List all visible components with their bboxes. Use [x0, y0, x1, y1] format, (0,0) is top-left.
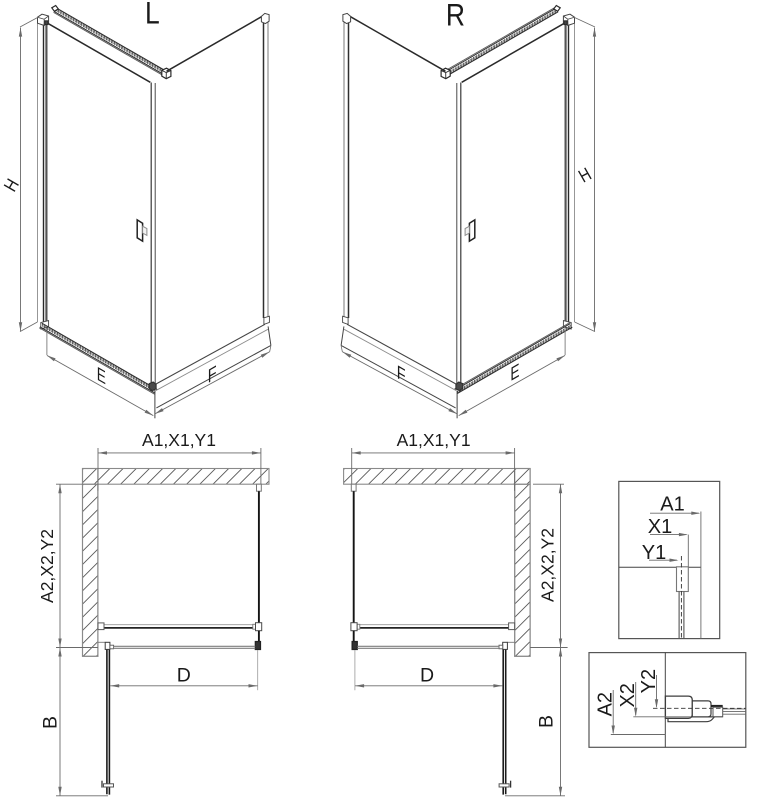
svg-text:A1,X1,Y1: A1,X1,Y1 — [142, 430, 216, 450]
svg-text:D: D — [420, 665, 434, 687]
svg-text:A2,X2,Y2: A2,X2,Y2 — [538, 528, 558, 602]
svg-text:B: B — [40, 716, 62, 729]
svg-text:Y1: Y1 — [642, 542, 666, 564]
svg-text:X1: X1 — [648, 516, 672, 538]
svg-text:B: B — [536, 715, 558, 728]
svg-text:A1,X1,Y1: A1,X1,Y1 — [397, 430, 471, 450]
svg-text:Y2: Y2 — [638, 669, 660, 693]
svg-text:R: R — [446, 0, 465, 33]
svg-text:D: D — [177, 665, 191, 687]
svg-text:L: L — [145, 0, 160, 31]
svg-text:A2,X2,Y2: A2,X2,Y2 — [37, 529, 57, 603]
svg-text:X2: X2 — [617, 683, 639, 707]
svg-text:A1: A1 — [660, 494, 684, 516]
svg-text:A2: A2 — [595, 692, 617, 716]
